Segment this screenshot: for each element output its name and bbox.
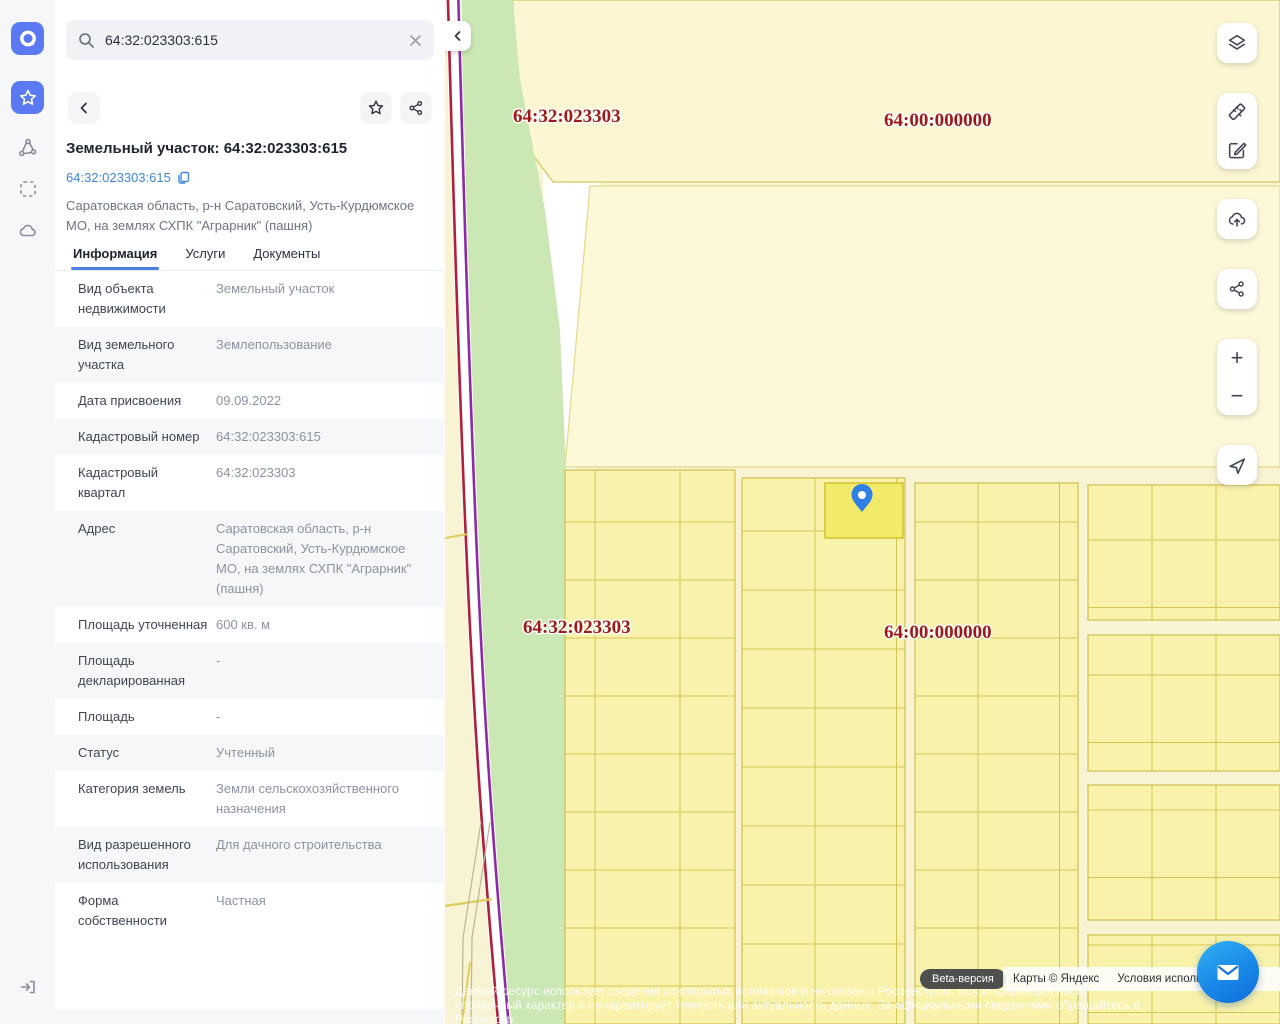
row-value: Земли сельскохозяйственного назначения bbox=[216, 779, 433, 819]
layers-button[interactable] bbox=[1217, 23, 1257, 63]
app-rail bbox=[0, 0, 55, 1024]
envelope-icon bbox=[1214, 958, 1242, 986]
quarter-label: 64:32:023303 bbox=[513, 106, 621, 127]
sidebar-item-area-select[interactable] bbox=[11, 172, 44, 205]
copy-icon[interactable] bbox=[177, 171, 190, 184]
row-label: Форма собственности bbox=[78, 891, 208, 931]
map-canvas[interactable]: 64:32:023303 64:00:000000 64:32:023303 6… bbox=[445, 0, 1280, 1024]
edit-button[interactable] bbox=[1217, 131, 1257, 169]
star-icon bbox=[367, 99, 385, 117]
share-button[interactable] bbox=[400, 92, 432, 124]
quarter-label: 64:00:000000 bbox=[884, 110, 992, 131]
search-input[interactable] bbox=[105, 32, 409, 48]
table-row: Площадь уточненная 600 кв. м bbox=[55, 607, 445, 643]
row-label: Площадь уточненная bbox=[78, 615, 208, 635]
logout-button[interactable] bbox=[11, 970, 44, 1003]
table-row: Кадастровый квартал 64:32:023303 bbox=[55, 455, 445, 511]
clear-search-icon[interactable] bbox=[409, 34, 422, 47]
collapse-panel-button[interactable] bbox=[445, 21, 471, 51]
logout-icon bbox=[17, 976, 39, 998]
quarter-top[interactable] bbox=[513, 0, 1280, 182]
polygon-nodes-icon bbox=[17, 137, 39, 159]
row-label: Вид земельного участка bbox=[78, 335, 208, 375]
row-label: Категория земель bbox=[78, 779, 208, 819]
row-value: Для дачного строительства bbox=[216, 835, 433, 875]
table-row: Адрес Саратовская область, р-н Саратовск… bbox=[55, 511, 445, 607]
info-table: Вид объекта недвижимости Земельный участ… bbox=[55, 271, 445, 939]
row-label: Кадастровый квартал bbox=[78, 463, 208, 503]
sidebar-item-polygon[interactable] bbox=[11, 131, 44, 164]
quarter-middle[interactable] bbox=[565, 186, 1280, 467]
cloud-icon bbox=[17, 220, 39, 242]
measure-edit-group bbox=[1217, 93, 1257, 169]
tab[interactable]: Документы bbox=[253, 246, 320, 270]
zoom-control: + − bbox=[1217, 339, 1257, 415]
parcel-block-d[interactable] bbox=[1088, 485, 1280, 1024]
parcel-block-b[interactable] bbox=[742, 478, 905, 1024]
maps-copyright: Карты © Яндекс bbox=[1013, 973, 1099, 985]
table-row: Статус Учтенный bbox=[55, 735, 445, 771]
row-label: Статус bbox=[78, 743, 208, 763]
star-icon bbox=[18, 88, 38, 108]
table-row: Дата присвоения 09.09.2022 bbox=[55, 383, 445, 419]
row-value: Саратовская область, р-н Саратовский, Ус… bbox=[216, 519, 433, 599]
layers-icon bbox=[1226, 32, 1248, 54]
edit-icon bbox=[1226, 139, 1248, 161]
measure-button[interactable] bbox=[1217, 93, 1257, 131]
zoom-in-button[interactable]: + bbox=[1217, 339, 1257, 377]
search-icon bbox=[78, 32, 95, 49]
share-icon bbox=[407, 99, 425, 117]
row-value: - bbox=[216, 707, 433, 727]
cloud-upload-icon bbox=[1226, 208, 1248, 230]
row-value: Учтенный bbox=[216, 743, 433, 763]
share-icon bbox=[1227, 279, 1247, 299]
row-value: 600 кв. м bbox=[216, 615, 433, 635]
row-value: 09.09.2022 bbox=[216, 391, 433, 411]
table-row: Площадь - bbox=[55, 699, 445, 735]
row-label: Дата присвоения bbox=[78, 391, 208, 411]
table-row: Вид объекта недвижимости Земельный участ… bbox=[55, 271, 445, 327]
app-logo-icon bbox=[17, 28, 39, 50]
table-row: Кадастровый номер 64:32:023303:615 bbox=[55, 419, 445, 455]
row-value: Частная bbox=[216, 891, 433, 931]
table-row: Вид разрешенного использования Для дачно… bbox=[55, 827, 445, 883]
table-row: Форма собственности Частная bbox=[55, 883, 445, 939]
row-label: Кадастровый номер bbox=[78, 427, 208, 447]
back-button[interactable] bbox=[68, 92, 100, 124]
app-logo[interactable] bbox=[11, 22, 44, 55]
row-value: - bbox=[216, 651, 433, 691]
address-summary: Саратовская область, р-н Саратовский, Ус… bbox=[66, 196, 426, 236]
row-value: 64:32:023303:615 bbox=[216, 427, 433, 447]
cadastral-map: 64:32:023303 64:00:000000 64:32:023303 6… bbox=[445, 0, 1280, 1024]
zoom-out-button[interactable]: − bbox=[1217, 377, 1257, 415]
row-label: Адрес bbox=[78, 519, 208, 599]
row-value: Землепользование bbox=[216, 335, 433, 375]
map-share-button[interactable] bbox=[1217, 269, 1257, 309]
row-label: Вид разрешенного использования bbox=[78, 835, 208, 875]
sidebar-item-favorites[interactable] bbox=[11, 81, 44, 114]
locate-button[interactable] bbox=[1217, 445, 1257, 485]
ruler-icon bbox=[1226, 101, 1248, 123]
table-row: Категория земель Земли сельскохозяйствен… bbox=[55, 771, 445, 827]
parcel-block-a[interactable] bbox=[565, 470, 735, 1024]
next-row-partial bbox=[55, 1009, 445, 1024]
quarter-label: 64:00:000000 bbox=[884, 622, 992, 643]
area-select-icon bbox=[17, 178, 39, 200]
row-value: 64:32:023303 bbox=[216, 463, 433, 503]
tab[interactable]: Информация bbox=[73, 246, 157, 270]
beta-badge: Beta-версия bbox=[920, 969, 1006, 989]
upload-button[interactable] bbox=[1217, 199, 1257, 239]
quarter-label: 64:32:023303 bbox=[523, 617, 631, 638]
row-label: Вид объекта недвижимости bbox=[78, 279, 208, 319]
page-title: Земельный участок: 64:32:023303:615 bbox=[66, 140, 434, 157]
search-bar[interactable] bbox=[66, 20, 434, 60]
chat-button[interactable] bbox=[1197, 941, 1259, 1003]
locate-icon bbox=[1226, 454, 1248, 476]
cadastral-number-link[interactable]: 64:32:023303:615 bbox=[66, 170, 171, 185]
row-value: Земельный участок bbox=[216, 279, 433, 319]
detail-tabs: ИнформацияУслугиДокументы bbox=[73, 246, 320, 270]
table-row: Вид земельного участка Землепользование bbox=[55, 327, 445, 383]
sidebar-item-cloud[interactable] bbox=[11, 214, 44, 247]
favorite-button[interactable] bbox=[360, 92, 392, 124]
object-detail-panel: Земельный участок: 64:32:023303:615 64:3… bbox=[55, 0, 445, 1024]
parcel-block-c[interactable] bbox=[915, 483, 1078, 1024]
row-label: Площадь декларированная bbox=[78, 651, 208, 691]
table-row: Площадь декларированная - bbox=[55, 643, 445, 699]
row-label: Площадь bbox=[78, 707, 208, 727]
tab[interactable]: Услуги bbox=[185, 246, 225, 270]
